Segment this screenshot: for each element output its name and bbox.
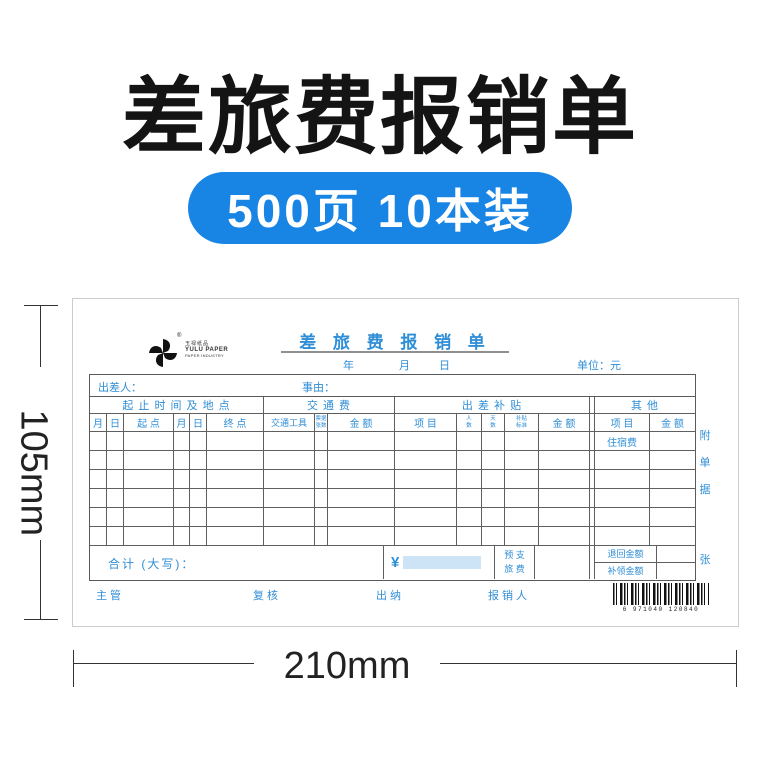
signature-supervisor: 主管 (96, 587, 124, 603)
table-cell (328, 508, 395, 527)
table-cell (174, 470, 190, 489)
group-header-time-place: 起 止 时 间 及 地 点 (90, 397, 264, 414)
total-amount-cell: ¥ (384, 546, 495, 579)
table-cell (505, 527, 539, 546)
col-header-standard: 补贴 标准 (505, 414, 539, 432)
table-cell (90, 508, 107, 527)
table-cell (539, 451, 590, 470)
unit-label: 单位：元 (577, 357, 621, 373)
brand-subtitle: PAPER INDUSTRY (185, 354, 228, 359)
table-cell (124, 432, 174, 451)
col-header-amount2: 金 额 (539, 414, 590, 432)
supplement-value-cell (657, 563, 695, 579)
table-cell (124, 470, 174, 489)
table-cell (650, 432, 695, 451)
table-cell (595, 489, 650, 508)
table-cell (457, 451, 482, 470)
table-cell (124, 527, 174, 546)
table-cell (315, 451, 328, 470)
table-cell (505, 470, 539, 489)
table-cell (539, 489, 590, 508)
signature-claimant: 报销人 (488, 587, 530, 603)
reason-label: 事由： (302, 379, 335, 395)
col-header-days-line2: 数 (490, 423, 496, 429)
table-cell (457, 508, 482, 527)
table-cell (124, 508, 174, 527)
dim-cap (24, 619, 58, 620)
table-grid: 起 止 时 间 及 地 点 交 通 费 出 差 补 贴 其 他 月 日 起 点 … (90, 397, 695, 546)
barcode-digits: 6 971040 120840 (613, 606, 709, 613)
attach-char: 附 (700, 427, 711, 443)
dim-cap (736, 650, 737, 687)
table-cell (90, 470, 107, 489)
table-cell (395, 432, 457, 451)
table-cell (90, 451, 107, 470)
supplement-row: 补领金额 (595, 563, 695, 579)
table-cell (207, 432, 264, 451)
totals-row: 合计 (大写)： ¥ 预 支 旅 费 退回金额 (90, 546, 695, 579)
form-paper: ® 玉禄纸品 YULU PAPER PAPER INDUSTRY 差 旅 费 报… (72, 298, 739, 627)
date-day-label: 日 (439, 357, 450, 373)
table-cell (595, 527, 650, 546)
col-header-tickets-line2: 张数 (315, 423, 326, 429)
table-cell (539, 508, 590, 527)
attach-char: 据 (700, 481, 711, 497)
col-header-vehicle: 交通工具 (264, 414, 315, 432)
table-cell (595, 508, 650, 527)
attach-sheets-char: 张 (700, 551, 711, 567)
col-header-standard-line2: 标准 (516, 423, 527, 429)
table-cell (539, 432, 590, 451)
table-cell (539, 527, 590, 546)
table-cell (482, 489, 505, 508)
col-header-start: 起 点 (124, 414, 174, 432)
table-cell (395, 489, 457, 508)
table-cell (457, 527, 482, 546)
table-cell (315, 432, 328, 451)
table-cell (190, 432, 207, 451)
traveler-reason-row: 出差人： 事由： (90, 375, 695, 397)
advance-label-line2: 旅 费 (504, 563, 525, 577)
table-cell (107, 470, 124, 489)
dim-cap (73, 650, 74, 687)
width-dimension-label: 210mm (254, 645, 440, 688)
page-title: 差旅费报销单 (0, 50, 760, 171)
signature-cashier: 出纳 (376, 587, 404, 603)
col-header-amount3: 金 额 (650, 414, 695, 432)
advance-label-line1: 预 支 (504, 549, 525, 563)
table-cell (174, 432, 190, 451)
table-cell (124, 489, 174, 508)
table-cell (315, 508, 328, 527)
table-cell (190, 489, 207, 508)
table-cell (264, 470, 315, 489)
col-header-item2: 项 目 (595, 414, 650, 432)
table-cell (107, 489, 124, 508)
table-cell (264, 489, 315, 508)
table-cell (174, 489, 190, 508)
table-cell (482, 508, 505, 527)
amount-highlight-strip (403, 556, 481, 569)
table-cell (264, 432, 315, 451)
table-cell (264, 508, 315, 527)
attach-note: 附 单 据 张 (697, 427, 713, 567)
table-cell (395, 451, 457, 470)
table-cell (650, 470, 695, 489)
table-cell (174, 508, 190, 527)
advance-travel-cell: 预 支 旅 费 (495, 546, 535, 579)
table-cell (505, 451, 539, 470)
col-header-month: 月 (90, 414, 107, 432)
signature-reviewer: 复核 (253, 587, 281, 603)
col-header-day2: 日 (190, 414, 207, 432)
total-in-words-label: 合计 (大写)： (108, 555, 195, 572)
table-cell (482, 451, 505, 470)
group-header-transport: 交 通 费 (264, 397, 395, 414)
traveler-label: 出差人： (98, 379, 142, 395)
table-cell (124, 451, 174, 470)
col-header-amount: 金 额 (328, 414, 395, 432)
group-header-allowance: 出 差 补 贴 (395, 397, 590, 414)
table-cell (207, 489, 264, 508)
table-cell (174, 527, 190, 546)
table-cell (650, 489, 695, 508)
table-cell (457, 432, 482, 451)
total-in-words-cell: 合计 (大写)： (90, 546, 384, 579)
dim-cap (24, 305, 58, 306)
col-header-end: 终 点 (207, 414, 264, 432)
supplement-label: 补领金额 (595, 563, 657, 579)
table-cell (174, 451, 190, 470)
table-cell (315, 489, 328, 508)
table-cell (190, 451, 207, 470)
refund-row: 退回金额 (595, 546, 695, 563)
table-cell (315, 470, 328, 489)
table-cell (264, 451, 315, 470)
refund-supplement-block: 退回金额 补领金额 (595, 546, 695, 579)
form-title: 差 旅 费 报 销 单 (277, 328, 513, 353)
table-cell (107, 451, 124, 470)
lodging-cell: 住宿费 (595, 432, 650, 451)
col-header-item: 项 目 (395, 414, 457, 432)
table-cell (482, 527, 505, 546)
product-image: 差旅费报销单 500页 10本装 105mm 210mm ® 玉禄纸品 (0, 0, 760, 760)
refund-value-cell (657, 546, 695, 562)
group-header-other: 其 他 (595, 397, 695, 414)
table-cell (395, 527, 457, 546)
table-cell (395, 470, 457, 489)
table-cell (505, 508, 539, 527)
col-header-day: 日 (107, 414, 124, 432)
table-cell (505, 489, 539, 508)
table-cell (328, 527, 395, 546)
refund-label: 退回金额 (595, 546, 657, 562)
attach-char: 单 (700, 454, 711, 470)
table-cell (457, 470, 482, 489)
col-header-month2: 月 (174, 414, 190, 432)
table-cell (315, 527, 328, 546)
table-cell (482, 432, 505, 451)
table-cell (107, 527, 124, 546)
brand-text: 玉禄纸品 YULU PAPER PAPER INDUSTRY (185, 341, 228, 359)
col-header-tickets: 票据 张数 (315, 414, 328, 432)
pinwheel-logo-icon (147, 337, 179, 369)
dim-line (440, 663, 736, 664)
table-cell (595, 470, 650, 489)
table-cell (595, 451, 650, 470)
table-cell (650, 508, 695, 527)
table-cell (207, 508, 264, 527)
table-cell (190, 508, 207, 527)
table-cell (650, 451, 695, 470)
table-cell (107, 432, 124, 451)
dim-line (40, 540, 41, 620)
col-header-people-line2: 数 (466, 423, 472, 429)
registered-mark: ® (177, 333, 181, 339)
table-cell (539, 470, 590, 489)
yen-sign: ¥ (391, 554, 399, 571)
dim-line (40, 305, 41, 367)
table-cell (107, 508, 124, 527)
height-dimension-label: 105mm (12, 410, 55, 518)
table-cell (650, 527, 695, 546)
table-cell (264, 527, 315, 546)
dim-line (74, 663, 254, 664)
barcode (613, 583, 709, 605)
table-cell (207, 470, 264, 489)
table-cell (457, 489, 482, 508)
pack-size-badge: 500页 10本装 (188, 172, 572, 244)
table-cell (328, 470, 395, 489)
table-cell (207, 527, 264, 546)
table-cell (328, 489, 395, 508)
table-cell (90, 527, 107, 546)
table-cell (395, 508, 457, 527)
table-cell (328, 432, 395, 451)
table-cell (505, 432, 539, 451)
table-cell (328, 451, 395, 470)
date-month-label: 月 (399, 357, 410, 373)
col-header-people: 人 数 (457, 414, 482, 432)
table-cell (90, 489, 107, 508)
table-cell (190, 470, 207, 489)
expense-table: 出差人： 事由： 起 止 时 间 及 地 点 交 通 费 出 差 补 贴 其 他… (89, 374, 696, 581)
date-year-label: 年 (343, 357, 354, 373)
table-cell (207, 451, 264, 470)
table-cell (482, 470, 505, 489)
advance-value-cell (535, 546, 590, 579)
table-cell (190, 527, 207, 546)
table-cell (90, 432, 107, 451)
form-title-underline (281, 351, 509, 353)
col-header-days: 天 数 (482, 414, 505, 432)
